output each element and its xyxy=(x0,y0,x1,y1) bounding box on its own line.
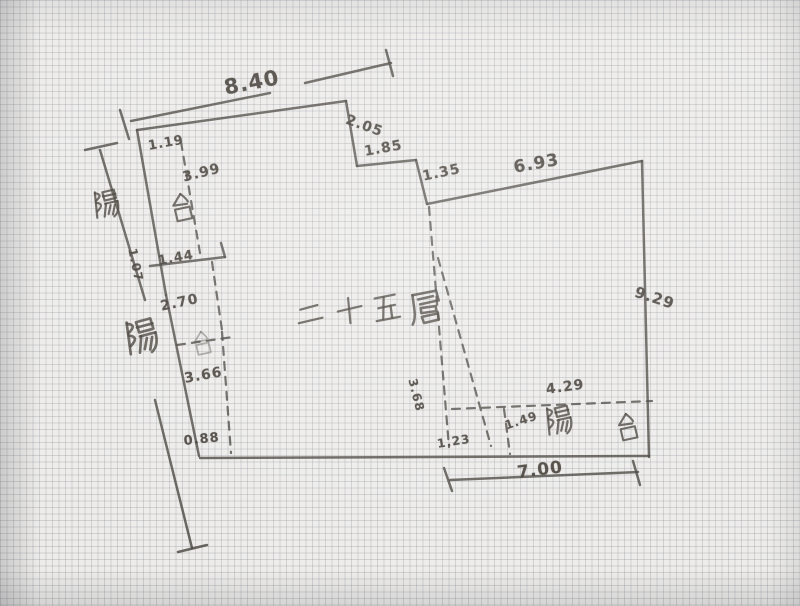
dimension-label: 1.07 xyxy=(125,247,146,283)
dimension-label: 2.70 xyxy=(159,291,200,315)
floor-title-char xyxy=(290,295,328,336)
balcony-label-char xyxy=(187,327,218,361)
dimension-label: 1.35 xyxy=(421,161,462,185)
dimension-label: 1.23 xyxy=(436,432,471,451)
dimension-label: 9.29 xyxy=(632,283,677,313)
floor-plan-sketch: 二十五層 8.402.051.851.356.939.291.193.991.0… xyxy=(0,0,800,606)
dimension-label: 1.85 xyxy=(363,137,404,159)
floor-title-char xyxy=(404,285,447,332)
dimension-label: 3.68 xyxy=(405,377,427,413)
dimension-label: 3.99 xyxy=(181,161,222,186)
dimension-label: 1.44 xyxy=(157,248,195,269)
labels-layer: 8.402.051.851.356.939.291.193.991.071.44… xyxy=(0,0,800,606)
balcony-label-char xyxy=(118,313,165,363)
dimension-label: 4.29 xyxy=(545,377,585,398)
dimension-label: 1.19 xyxy=(147,133,185,154)
floor-title-char xyxy=(366,289,405,331)
floor-title-char xyxy=(330,291,368,332)
balcony-label-char xyxy=(540,401,578,442)
dimension-label: 1.49 xyxy=(503,409,539,433)
dimension-label: 0.88 xyxy=(183,430,220,449)
balcony-label-char xyxy=(164,189,201,229)
dimension-label: 6.93 xyxy=(512,150,561,178)
balcony-label-char xyxy=(88,186,125,226)
balcony-label-char xyxy=(610,409,646,448)
dimension-label: 7.00 xyxy=(516,457,564,482)
dimension-label: 2.05 xyxy=(344,112,386,140)
dimension-label: 8.40 xyxy=(222,65,281,99)
dimension-label: 3.66 xyxy=(183,364,224,386)
